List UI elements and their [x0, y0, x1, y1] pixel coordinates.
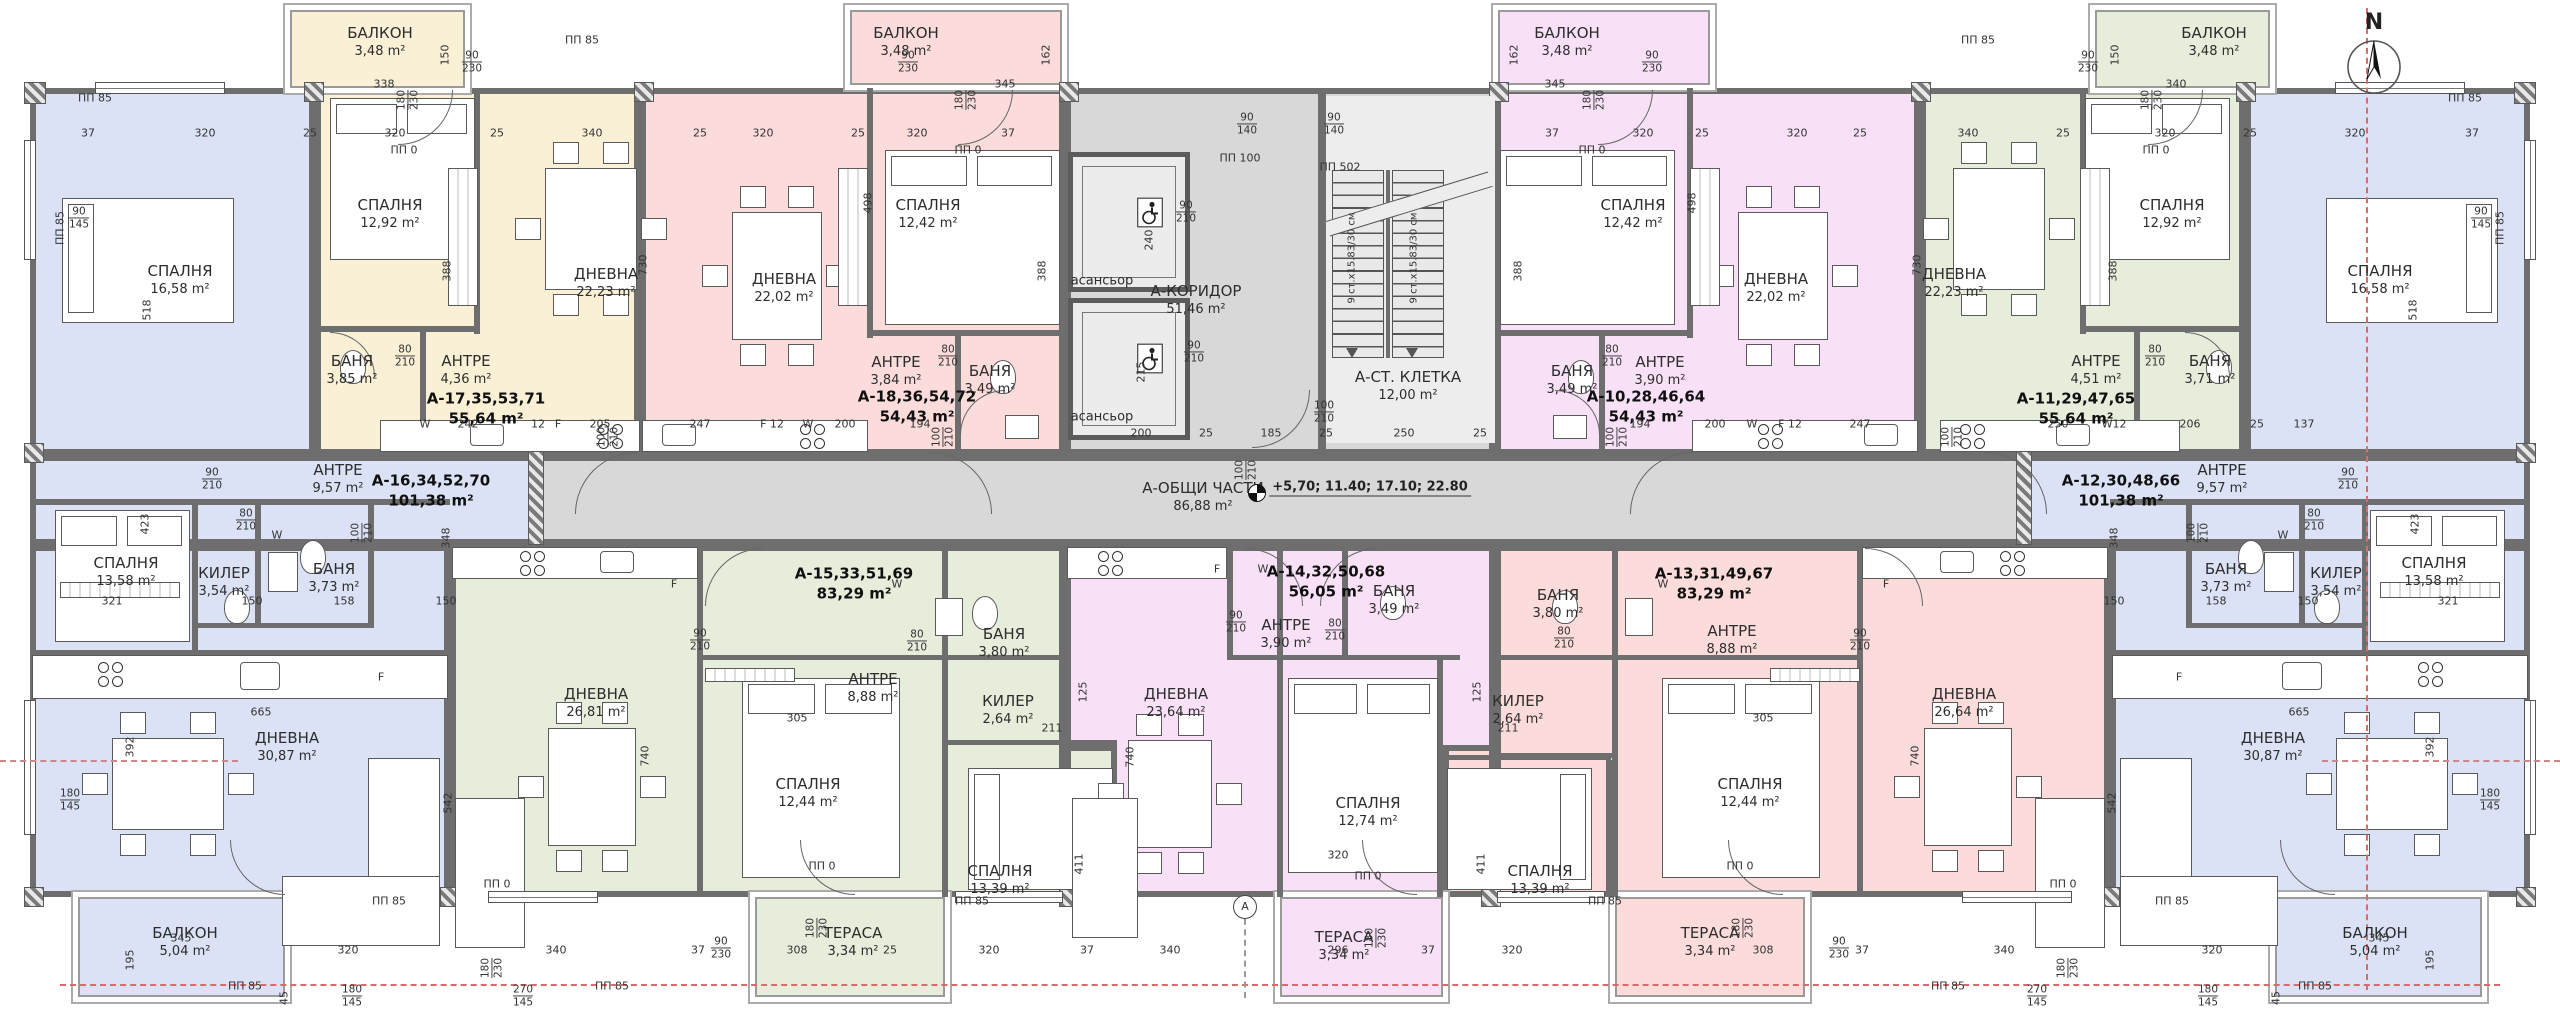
dimension-annotation: 37: [2465, 127, 2479, 140]
common-area-name: А-СТ. КЛЕТКА: [1355, 368, 1461, 388]
door-size-annotation: 90210: [1176, 199, 1196, 224]
chair-icon: [602, 850, 628, 872]
common-area-name: А-КОРИДОР: [1151, 282, 1242, 302]
room-name: СПАЛНЯ: [1601, 196, 1666, 216]
wall: [867, 330, 1065, 336]
dimension-numerator: 180: [1730, 918, 1742, 938]
pier-column: [2516, 887, 2536, 907]
dimension-annotation: F: [671, 578, 677, 591]
wall: [315, 326, 477, 332]
dimension-numerator: 80: [938, 343, 958, 355]
chair-icon: [228, 773, 254, 795]
dimension-annotation: 25: [1473, 427, 1487, 440]
dimension-numerator: 180: [342, 983, 362, 995]
dimension-annotation: ПП 0: [954, 144, 981, 157]
dimension-annotation: 320: [1787, 127, 1808, 140]
room-name: СПАЛНЯ: [358, 196, 423, 216]
dimension-annotation: ПП 0: [808, 860, 835, 873]
dimension-numerator: 90: [2471, 205, 2491, 217]
north-label: N: [2338, 10, 2410, 35]
stove-icon: [1974, 438, 1985, 449]
dimension-numerator: 90: [1226, 609, 1246, 621]
door-size-annotation: 80210: [2304, 507, 2324, 532]
stair-divider: [1386, 170, 1390, 358]
chair-icon: [788, 344, 814, 366]
dimension-annotation: 45: [278, 991, 291, 1005]
dimension-annotation: 37: [691, 944, 705, 957]
door-size-annotation: 90230: [898, 49, 918, 74]
room-label: ДНЕВНА22,02 m²: [1744, 270, 1808, 306]
room-area: 22,02 m²: [1744, 289, 1808, 306]
room-label: БАНЯ3,73 m²: [309, 560, 360, 596]
dimension-annotation: 340: [2166, 78, 2187, 91]
room-area: 13,58 m²: [2402, 573, 2467, 590]
dimension-numerator: 90: [2338, 466, 2358, 478]
dimension-annotation: 665: [251, 706, 272, 719]
apartment-id: А-10,28,46,64: [1587, 388, 1705, 408]
dimension-annotation: ПП 85: [2448, 92, 2482, 105]
dimension-numerator: 90: [1850, 627, 1870, 639]
room-area: 12,92 m²: [358, 215, 423, 232]
room-label: АНТРЕ3,90 m²: [1261, 616, 1312, 652]
dimension-numerator: 100: [1233, 460, 1245, 480]
chair-icon: [1894, 776, 1920, 798]
stove-icon: [98, 662, 109, 673]
dimension-annotation: 320: [1633, 127, 1654, 140]
room-label: БАНЯ3,85 m²: [327, 352, 378, 388]
chair-icon: [1794, 344, 1820, 366]
dimension-numerator: 100: [1604, 427, 1616, 447]
room-name: ДНЕВНА: [1922, 265, 1986, 285]
door-size-annotation: 180145: [342, 983, 362, 1008]
dimension-annotation: 194: [910, 418, 931, 431]
room-label: СПАЛНЯ12,92 m²: [358, 196, 423, 232]
dimension-annotation: 206: [2180, 418, 2201, 431]
door-size-annotation: 80210: [2145, 343, 2165, 368]
room-area: 3,80 m²: [979, 644, 1030, 661]
apartment-id-label: А-13,31,49,6783,29 m²: [1655, 565, 1773, 604]
room-label: БАЛКОН3,48 m²: [347, 24, 413, 60]
door-size-annotation: 90230: [2078, 49, 2098, 74]
stove-icon: [534, 551, 545, 562]
door-size-annotation: 90230: [1829, 935, 1849, 960]
wall: [2083, 326, 2245, 332]
chair-icon: [82, 773, 108, 795]
dimension-denominator: 210: [690, 640, 710, 653]
stove-icon: [2014, 565, 2025, 576]
door-size-annotation: 180230: [1730, 918, 1755, 938]
room-area: 3,49 m²: [965, 381, 1016, 398]
dimension-denominator: 210: [1184, 352, 1204, 365]
stove-icon: [1758, 424, 1769, 435]
chair-icon: [1746, 344, 1772, 366]
dimension-denominator: 210: [1314, 412, 1334, 425]
dimension-numerator: 80: [1325, 617, 1345, 629]
dimension-annotation: 740: [639, 746, 652, 767]
apartment-id: А-18,36,54,72: [858, 388, 976, 408]
chair-icon: [553, 142, 579, 164]
dimension-numerator: 100: [930, 427, 942, 447]
door-size-annotation: 180230: [395, 90, 420, 110]
dimension-denominator: 210: [907, 641, 927, 654]
room-name: АНТРЕ: [313, 461, 364, 481]
door-size-annotation: 90210: [1850, 627, 1870, 652]
room-label: КИЛЕР2,64 m²: [982, 692, 1034, 728]
dimension-annotation: 25: [1695, 127, 1709, 140]
room-label: БАНЯ3,73 m²: [2201, 560, 2252, 596]
dimension-denominator: 210: [362, 523, 375, 543]
dimension-annotation: 200: [1131, 427, 1152, 440]
common-area-size: 12,00 m²: [1355, 387, 1461, 404]
dimension-annotation: 320: [2345, 127, 2366, 140]
room-area: 9,57 m²: [313, 480, 364, 497]
pillow-icon: [1294, 684, 1357, 714]
pier-column: [24, 443, 44, 463]
room-area: 30,87 m²: [255, 748, 319, 765]
wall: [1495, 655, 1615, 660]
sink-icon: [1625, 598, 1653, 636]
window: [1962, 891, 2072, 903]
dimension-denominator: 210: [1325, 630, 1345, 643]
chair-icon: [603, 142, 629, 164]
common-area-label: А-ОБЩИ ЧАСТИ86,88 m²: [1142, 479, 1264, 515]
chair-icon: [1178, 852, 1204, 874]
wall: [1227, 545, 1233, 660]
dimension-annotation: ПП 0: [1578, 144, 1605, 157]
dimension-numerator: 90: [1176, 199, 1196, 211]
dimension-annotation: ПП 85: [1588, 895, 1622, 908]
room-area: 3,49 m²: [1547, 381, 1598, 398]
room-area: 12,42 m²: [1601, 215, 1666, 232]
dimension-denominator: 210: [1176, 212, 1196, 225]
dimension-numerator: 90: [1829, 935, 1849, 947]
sofa-icon: [2120, 876, 2278, 946]
dimension-denominator: 230: [1376, 928, 1389, 948]
room-name: СПАЛНЯ: [1718, 775, 1783, 795]
wall: [1612, 545, 1618, 897]
dimension-numerator: 270: [2027, 983, 2047, 995]
apartment-id: А-14,32,50,68: [1267, 563, 1385, 583]
dimension-annotation: 320: [2202, 944, 2223, 957]
pillow-icon: [1506, 156, 1582, 186]
dimension-annotation: 150: [2298, 595, 2319, 608]
wall: [1495, 330, 1693, 336]
dimension-annotation: 162: [1040, 45, 1053, 66]
dimension-annotation: 340: [1160, 944, 1181, 957]
dimension-annotation: 25: [693, 127, 707, 140]
door-size-annotation: 90210: [2338, 466, 2358, 491]
dimension-annotation: 423: [139, 514, 152, 535]
dimension-denominator: 210: [1246, 460, 1259, 480]
room-area: 22,23 m²: [1922, 284, 1986, 301]
room-area: 3,48 m²: [2181, 43, 2247, 60]
dimension-numerator: 180: [479, 958, 491, 978]
dimension-annotation: ПП 0: [1354, 870, 1381, 883]
chair-icon: [556, 850, 582, 872]
pillow-icon: [748, 684, 815, 714]
stove-icon: [800, 438, 811, 449]
dimension-annotation: 320: [2155, 127, 2176, 140]
apartment-id-label: А-12,30,48,66101,38 m²: [2062, 472, 2180, 511]
room-label: ДНЕВНА30,87 m²: [2241, 729, 2305, 765]
dimension-annotation: ПП 0: [390, 144, 417, 157]
dimension-annotation: 345: [1545, 78, 1566, 91]
dimension-annotation: 247: [690, 418, 711, 431]
wall: [1443, 755, 1611, 760]
door-size-annotation: 270145: [513, 983, 533, 1008]
elevator-label: асансьор: [1071, 274, 1134, 291]
dimension-annotation: ПП 85: [54, 211, 67, 245]
room-label: СПАЛНЯ13,39 m²: [1508, 862, 1573, 898]
dimension-denominator: 210: [395, 356, 415, 369]
room-label: СПАЛНЯ12,42 m²: [896, 196, 961, 232]
dimension-numerator: 180: [395, 90, 407, 110]
sink-icon: [935, 598, 963, 636]
dimension-annotation: 320: [1502, 944, 1523, 957]
door-size-annotation: 180230: [1581, 90, 1606, 110]
dimension-annotation: 158: [2206, 595, 2227, 608]
dimension-annotation: 250: [1394, 427, 1415, 440]
dimension-annotation: 518: [2407, 300, 2420, 321]
stove-icon: [520, 551, 531, 562]
room-area: 4,36 m²: [441, 371, 492, 388]
dimension-annotation: 150: [436, 595, 457, 608]
dimension-denominator: 230: [1642, 62, 1662, 75]
dimension-annotation: 195: [2424, 950, 2437, 971]
dimension-annotation: 388: [1036, 261, 1049, 282]
dimension-denominator: 210: [1554, 638, 1574, 651]
door-size-annotation: 180230: [2139, 90, 2164, 110]
pier-column: [634, 82, 654, 102]
pillow-icon: [977, 156, 1053, 186]
room-area: 3,80 m²: [1533, 605, 1584, 622]
room-area: 3,71 m²: [2185, 371, 2236, 388]
dimension-numerator: 90: [2078, 49, 2098, 61]
stove-icon: [1772, 438, 1783, 449]
wheelchair-icon: [1137, 198, 1163, 231]
chair-icon: [1978, 850, 2004, 872]
window: [24, 700, 36, 835]
stove-icon: [2418, 662, 2429, 673]
room-name: КИЛЕР: [198, 564, 250, 584]
dimension-annotation: 25: [303, 127, 317, 140]
kitchen-sink-icon: [1940, 551, 1974, 573]
dimension-annotation: 200: [1705, 418, 1726, 431]
dimension-annotation: ПП 85: [2155, 895, 2189, 908]
dimension-numerator: 180: [2055, 958, 2067, 978]
dimension-annotation: 305: [787, 712, 808, 725]
dimension-annotation: 247: [1850, 418, 1871, 431]
dimension-numerator: 80: [907, 628, 927, 640]
dimension-denominator: 230: [2068, 958, 2081, 978]
room-label: БАНЯ3,49 m²: [1369, 582, 1420, 618]
room-area: 30,87 m²: [2241, 748, 2305, 765]
stove-icon: [814, 424, 825, 435]
dimension-numerator: 180: [953, 90, 965, 110]
door-size-annotation: 100210: [1939, 427, 1964, 447]
wardrobe-icon: [448, 168, 478, 306]
door-size-annotation: 80210: [938, 343, 958, 368]
chair-icon: [518, 776, 544, 798]
chair-icon: [740, 186, 766, 208]
chair-icon: [640, 776, 666, 798]
room-name: ДНЕВНА: [574, 265, 638, 285]
dimension-denominator: 145: [513, 996, 533, 1009]
apartment-area: 101,38 m²: [2062, 491, 2180, 511]
room-label: СПАЛНЯ12,92 m²: [2140, 196, 2205, 232]
chair-icon: [1961, 142, 1987, 164]
room-name: АНТРЕ: [1261, 616, 1312, 636]
dimension-numerator: 270: [513, 983, 533, 995]
dimension-annotation: 195: [124, 950, 137, 971]
dimension-numerator: 80: [2145, 343, 2165, 355]
sofa-icon: [455, 798, 525, 948]
room-label: ДНЕВНА22,23 m²: [574, 265, 638, 301]
room-label: ДНЕВНА22,23 m²: [1922, 265, 1986, 301]
dimension-annotation: ПП 0: [1726, 860, 1753, 873]
dimension-annotation: F: [2176, 671, 2182, 684]
reference-dashed-line: [2366, 8, 2368, 990]
room-area: 13,39 m²: [1508, 881, 1573, 898]
door-size-annotation: 180145: [2198, 983, 2218, 1008]
dimension-annotation: 411: [1475, 854, 1488, 875]
dimension-annotation: 320: [195, 127, 216, 140]
room-label: АНТРЕ3,84 m²: [871, 353, 922, 389]
dimension-annotation: 37: [1080, 944, 1094, 957]
chair-icon: [2414, 834, 2440, 856]
room-name: ДНЕВНА: [752, 270, 816, 290]
room-name: ДНЕВНА: [255, 729, 319, 749]
sofa-icon: [282, 876, 440, 946]
room-name: БАНЯ: [965, 362, 1016, 382]
dimension-annotation: 340: [582, 127, 603, 140]
room-label: СПАЛНЯ12,42 m²: [1601, 196, 1666, 232]
dimension-annotation: 305: [1753, 712, 1774, 725]
stove-icon: [1112, 551, 1123, 562]
room-label: ДНЕВНА30,87 m²: [255, 729, 319, 765]
door-size-annotation: 90210: [1184, 339, 1204, 364]
pillow-icon: [891, 156, 967, 186]
room-area: 16,58 m²: [148, 281, 213, 298]
dimension-denominator: 210: [236, 520, 256, 533]
pillow-icon: [127, 516, 183, 546]
dimension-numerator: 90: [1184, 339, 1204, 351]
dimension-annotation: 125: [1471, 682, 1484, 703]
stove-icon: [2432, 676, 2443, 687]
dimension-denominator: 230: [966, 90, 979, 110]
room-area: 3,84 m²: [871, 372, 922, 389]
dimension-denominator: 230: [1594, 90, 1607, 110]
room-label: БАНЯ3,49 m²: [965, 362, 1016, 398]
door-size-annotation: 100210: [1233, 460, 1258, 480]
pier-column: [2516, 443, 2536, 463]
room-name: АНТРЕ: [441, 352, 492, 372]
dimension-denominator: 145: [69, 218, 89, 231]
door-size-annotation: 180145: [2480, 787, 2500, 812]
dimension-numerator: 90: [1324, 111, 1344, 123]
chair-icon: [2011, 142, 2037, 164]
dimension-denominator: 230: [2152, 90, 2165, 110]
stove-icon: [1098, 551, 1109, 562]
chair-icon: [2011, 294, 2037, 316]
stove-icon: [1112, 565, 1123, 576]
dimension-annotation: 730: [637, 255, 650, 276]
dimension-numerator: 100: [1939, 427, 1951, 447]
dimension-annotation: 162: [1508, 45, 1521, 66]
door-size-annotation: 180230: [804, 918, 829, 938]
dimension-denominator: 210: [2198, 523, 2211, 543]
dimension-denominator: 145: [2027, 996, 2047, 1009]
room-name: ДНЕВНА: [564, 685, 628, 705]
chair-icon: [2049, 218, 2075, 240]
wall: [2188, 623, 2365, 628]
dimension-annotation: ПП 0: [2049, 878, 2076, 891]
pillow-icon: [1745, 684, 1812, 714]
pillow-icon: [1668, 684, 1735, 714]
room-name: ДНЕВНА: [1144, 685, 1208, 705]
dimension-denominator: 230: [711, 948, 731, 961]
dimension-numerator: 180: [2139, 90, 2151, 110]
dimension-annotation: 25: [2056, 127, 2070, 140]
dimension-annotation: W: [803, 418, 814, 431]
dimension-annotation: 150: [2109, 45, 2122, 66]
door-size-annotation: 90210: [202, 466, 222, 491]
dimension-denominator: 210: [1952, 427, 1965, 447]
dimension-numerator: 180: [2198, 983, 2218, 995]
room-area: 12,74 m²: [1336, 813, 1401, 830]
dimension-denominator: 145: [60, 800, 80, 813]
room-label: СПАЛНЯ16,58 m²: [2348, 262, 2413, 298]
room-area: 3,48 m²: [1534, 43, 1600, 60]
sink-icon: [268, 552, 298, 592]
dimension-annotation: ПП 85: [78, 92, 112, 105]
dimension-annotation: ПП 85: [1931, 980, 1965, 993]
dimension-annotation: 25: [1853, 127, 1867, 140]
dimension-annotation: W12: [2102, 418, 2127, 431]
dimension-annotation: 194: [1630, 418, 1651, 431]
room-name: БАНЯ: [1547, 362, 1598, 382]
dimension-annotation: W: [1747, 418, 1758, 431]
dimension-denominator: 145: [2480, 800, 2500, 813]
apartment-area: 101,38 m²: [372, 491, 490, 511]
dimension-annotation: 150: [2104, 595, 2125, 608]
room-area: 12,42 m²: [896, 215, 961, 232]
room-area: 22,02 m²: [752, 289, 816, 306]
door-size-annotation: 100210: [2185, 523, 2210, 543]
dimension-annotation: 25: [1199, 427, 1213, 440]
room-name: ДНЕВНА: [2241, 729, 2305, 749]
room-label: СПАЛНЯ13,39 m²: [968, 862, 1033, 898]
room-name: БАНЯ: [2185, 352, 2236, 372]
common-area-size: 86,88 m²: [1142, 498, 1264, 515]
dimension-numerator: 180: [2480, 787, 2500, 799]
dimension-annotation: 240: [1143, 230, 1156, 251]
room-label: ДНЕВНА26,64 m²: [1932, 685, 1996, 721]
room-label: ДНЕВНА22,02 m²: [752, 270, 816, 306]
door-size-annotation: 90145: [69, 205, 89, 230]
wall: [1606, 760, 1612, 897]
chair-icon: [2016, 776, 2042, 798]
apartment-id: А-11,29,47,65: [2017, 390, 2135, 410]
balcony-zone: [1498, 10, 1710, 85]
stove-icon: [2000, 551, 2011, 562]
dimension-denominator: 230: [898, 62, 918, 75]
dimension-numerator: 80: [1554, 625, 1574, 637]
room-label: БАНЯ3,71 m²: [2185, 352, 2236, 388]
dimension-annotation: 542: [442, 793, 455, 814]
door-size-annotation: 90230: [462, 49, 482, 74]
pillow-icon: [1367, 684, 1430, 714]
